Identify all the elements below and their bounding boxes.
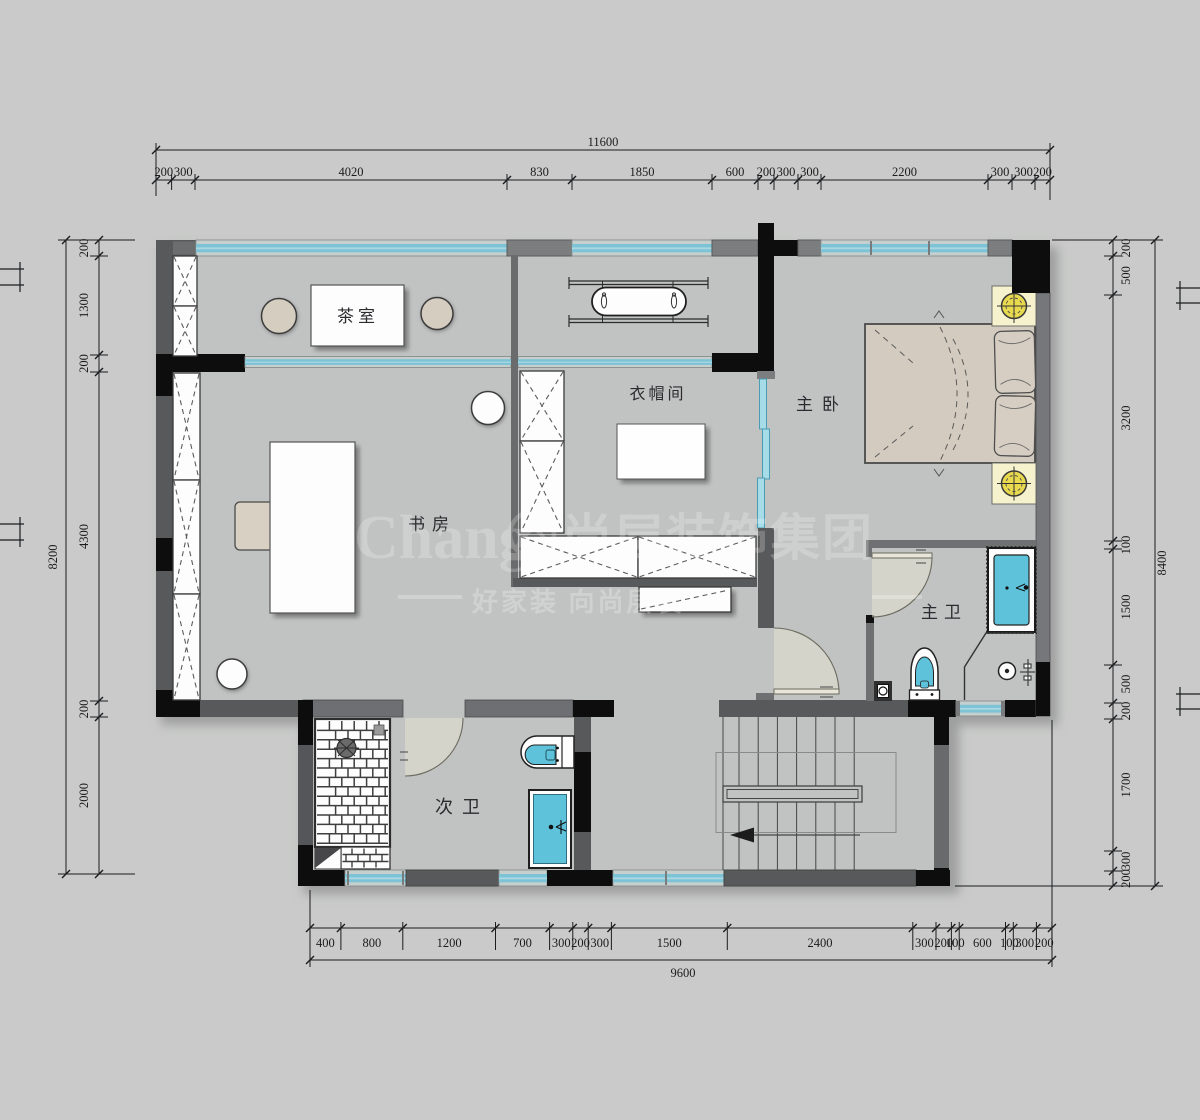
- svg-text:9600: 9600: [671, 966, 696, 980]
- svg-text:主卧: 主卧: [796, 395, 848, 414]
- svg-text:11600: 11600: [588, 135, 619, 149]
- svg-text:300: 300: [590, 936, 609, 950]
- svg-text:200: 200: [1119, 702, 1133, 721]
- svg-text:800: 800: [363, 936, 382, 950]
- svg-text:主卫: 主卫: [921, 603, 967, 622]
- svg-text:1850: 1850: [630, 165, 655, 179]
- svg-text:1500: 1500: [657, 936, 682, 950]
- svg-text:2400: 2400: [808, 936, 833, 950]
- svg-text:200: 200: [77, 700, 91, 719]
- svg-text:600: 600: [726, 165, 745, 179]
- svg-text:茶室: 茶室: [337, 307, 379, 326]
- svg-text:8200: 8200: [46, 545, 60, 570]
- svg-text:1700: 1700: [1119, 773, 1133, 798]
- svg-text:700: 700: [513, 936, 532, 950]
- svg-text:300: 300: [1015, 936, 1034, 950]
- svg-text:8400: 8400: [1155, 551, 1169, 576]
- svg-text:300: 300: [1014, 165, 1033, 179]
- svg-text:4020: 4020: [339, 165, 364, 179]
- svg-text:300: 300: [800, 165, 819, 179]
- svg-text:300: 300: [991, 165, 1010, 179]
- svg-text:200: 200: [1119, 239, 1133, 258]
- svg-text:次卫: 次卫: [435, 797, 489, 817]
- svg-text:4300: 4300: [77, 524, 91, 549]
- svg-text:好家装 向尚层装: 好家装 向尚层装: [471, 587, 685, 617]
- svg-text:1200: 1200: [437, 936, 462, 950]
- svg-text:300: 300: [915, 936, 934, 950]
- svg-text:200: 200: [1119, 869, 1133, 888]
- svg-text:200: 200: [77, 354, 91, 373]
- svg-text:尚层装饰集团: 尚层装饰集团: [562, 510, 874, 566]
- svg-text:200: 200: [1033, 165, 1052, 179]
- svg-text:830: 830: [530, 165, 549, 179]
- svg-text:Chang: Chang: [354, 504, 530, 572]
- svg-text:衣帽间: 衣帽间: [629, 385, 686, 403]
- svg-text:1500: 1500: [1119, 595, 1133, 620]
- svg-text:100: 100: [1119, 536, 1133, 555]
- svg-text:200: 200: [571, 936, 590, 950]
- svg-text:100: 100: [946, 936, 965, 950]
- svg-text:600: 600: [973, 936, 992, 950]
- svg-text:400: 400: [316, 936, 335, 950]
- svg-text:2200: 2200: [892, 165, 917, 179]
- svg-text:500: 500: [1119, 675, 1133, 694]
- svg-text:200: 200: [154, 165, 173, 179]
- svg-text:3200: 3200: [1119, 406, 1133, 431]
- svg-text:300: 300: [174, 165, 193, 179]
- svg-text:300: 300: [552, 936, 571, 950]
- svg-text:300: 300: [1119, 852, 1133, 871]
- svg-text:200: 200: [77, 239, 91, 258]
- svg-text:2000: 2000: [77, 783, 91, 808]
- svg-text:200: 200: [757, 165, 776, 179]
- svg-text:300: 300: [777, 165, 796, 179]
- svg-text:500: 500: [1119, 266, 1133, 285]
- svg-text:200: 200: [1035, 936, 1054, 950]
- svg-text:1300: 1300: [77, 293, 91, 318]
